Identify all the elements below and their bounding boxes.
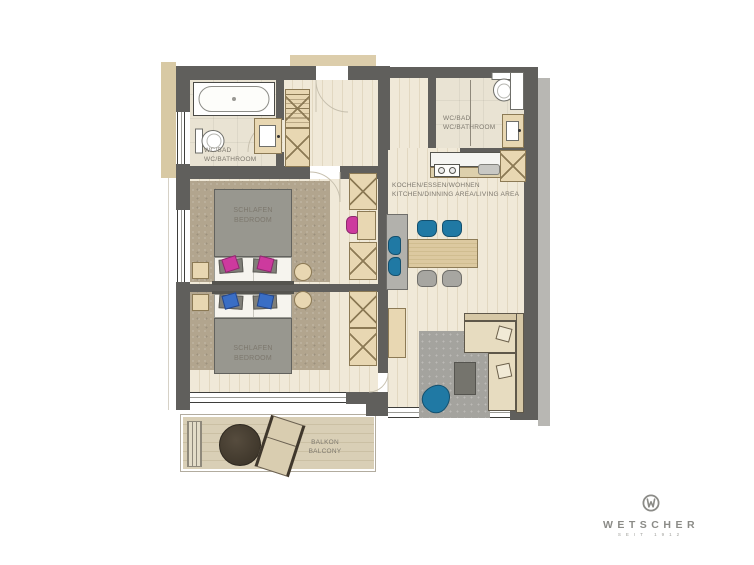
bathroom-2-label: WC/BAD WC/BATHROOM — [443, 114, 495, 132]
kitchen-tall-cabinet — [500, 150, 526, 182]
nightstand-2-right — [294, 291, 312, 309]
dining-chair-bottom-1 — [417, 270, 437, 287]
lounger-fold-line — [267, 436, 296, 446]
bathroom-2-label-de: WC/BAD — [443, 114, 495, 123]
bedroom-1-label-en: BEDROOM — [213, 216, 293, 226]
vanity-1 — [254, 118, 282, 154]
wardrobe-2b — [349, 328, 377, 366]
bathroom-1-label-de: WC/BAD — [204, 146, 256, 155]
kitchen-living-label-en: KITCHEN/DINNING AREA/LIVING AREA — [392, 190, 519, 199]
stove-burner-1 — [438, 167, 445, 174]
balcony-label: BALKON BALCONY — [294, 438, 356, 456]
wetscher-logo-icon — [642, 494, 660, 512]
floor-plan-canvas: WC/BAD WC/BATHROOM WC/BAD WC/BATHROOM KO… — [0, 0, 754, 565]
shower-divider — [470, 80, 471, 146]
dining-chair-top-2 — [442, 220, 462, 237]
bathroom-2-niche — [510, 72, 524, 110]
sofa-seat-right — [488, 353, 516, 411]
sink-1-faucet — [277, 135, 280, 138]
bedroom-1-label: SCHLAFEN BEDROOM — [213, 206, 293, 226]
sink-2-faucet — [518, 129, 521, 132]
bedroom-2-label: SCHLAFEN BEDROOM — [213, 344, 293, 364]
door-swing-arcs — [0, 0, 754, 565]
stove-burner-2 — [449, 167, 456, 174]
desk-chair — [346, 216, 358, 234]
dining-chair-left-1 — [388, 236, 401, 255]
kitchen-living-label-de: KOCHEN/ESSEN/WOHNEN — [392, 181, 519, 190]
wetscher-brand-text: WETSCHER — [590, 519, 712, 531]
bedroom-1-label-de: SCHLAFEN — [213, 206, 293, 216]
bathroom-1-label: WC/BAD WC/BATHROOM — [204, 146, 256, 164]
nightstand-2-left — [192, 294, 209, 311]
bathroom-1-label-en: WC/BATHROOM — [204, 155, 256, 164]
kitchen-sink — [478, 164, 500, 175]
dining-chair-top-1 — [417, 220, 437, 237]
wardrobe-1b — [349, 242, 377, 280]
wardrobe-2a — [349, 291, 377, 328]
wardrobe-1a — [349, 173, 377, 210]
vanity-2 — [502, 114, 524, 148]
bedroom-2-label-en: BEDROOM — [213, 354, 293, 364]
sink-2-basin — [506, 121, 519, 141]
sofa-pillow-2 — [496, 363, 513, 380]
dining-chair-bottom-2 — [442, 270, 462, 287]
tv-cabinet — [388, 308, 406, 358]
dining-chair-left-2 — [388, 257, 401, 276]
balcony-table — [219, 424, 261, 466]
dining-table — [408, 239, 478, 268]
coffee-table — [454, 362, 476, 395]
wetscher-logo: WETSCHER SEIT 1912 — [590, 494, 712, 537]
balcony-privacy-slats — [187, 421, 202, 467]
balcony-label-de: BALKON — [294, 438, 356, 447]
bed-2-accent-pillow-right — [257, 293, 275, 310]
bedroom-2-label-de: SCHLAFEN — [213, 344, 293, 354]
wetscher-tagline-text: SEIT 1912 — [590, 532, 712, 537]
kitchen-living-label: KOCHEN/ESSEN/WOHNEN KITCHEN/DINNING AREA… — [392, 181, 519, 199]
nightstand-1-right — [294, 263, 312, 281]
sink-1-basin — [259, 125, 276, 147]
bed-1-frame — [212, 281, 294, 285]
hall-wardrobe-shelves — [285, 89, 310, 128]
balcony-label-en: BALCONY — [294, 447, 356, 456]
desk — [357, 211, 376, 240]
bathroom-2-label-en: WC/BATHROOM — [443, 123, 495, 132]
nightstand-1-left — [192, 262, 209, 279]
hall-wardrobe — [285, 128, 310, 167]
sofa-back-right — [516, 313, 524, 413]
sofa-back-top — [464, 313, 524, 321]
bathtub — [193, 82, 275, 116]
